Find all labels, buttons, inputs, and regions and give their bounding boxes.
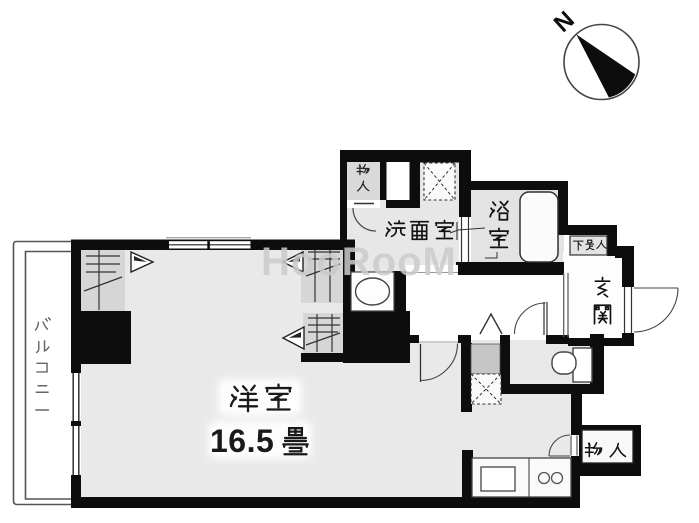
svg-text:16.5: 16.5: [210, 423, 274, 459]
svg-text:HooRooM: HooRooM: [261, 240, 457, 284]
